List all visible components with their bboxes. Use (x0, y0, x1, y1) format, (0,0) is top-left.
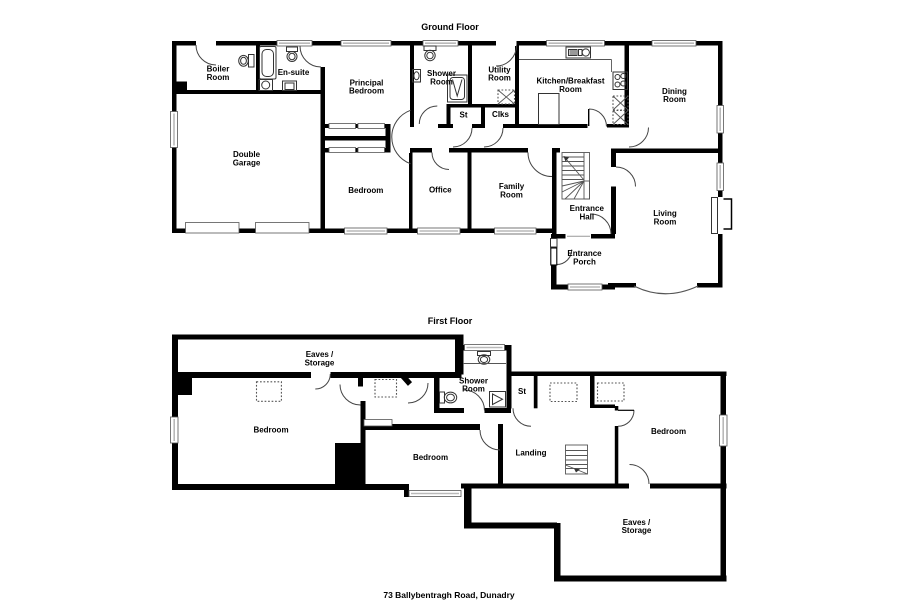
svg-text:Bedroom: Bedroom (253, 426, 288, 435)
svg-text:First Floor: First Floor (428, 316, 473, 326)
svg-text:Garage: Garage (233, 159, 261, 168)
svg-text:Bedroom: Bedroom (651, 427, 686, 436)
svg-text:En-suite: En-suite (278, 68, 310, 77)
svg-text:Storage: Storage (622, 526, 652, 535)
svg-text:Bedroom: Bedroom (349, 87, 384, 96)
svg-text:St: St (460, 111, 468, 120)
svg-text:Hall: Hall (579, 212, 594, 221)
svg-text:Room: Room (500, 191, 523, 200)
svg-text:Porch: Porch (573, 257, 596, 266)
svg-text:Room: Room (488, 74, 511, 83)
svg-text:Clks: Clks (492, 110, 509, 119)
svg-text:Landing: Landing (515, 449, 546, 458)
svg-text:Room: Room (663, 95, 686, 104)
svg-text:Room: Room (654, 217, 677, 226)
svg-text:Room: Room (430, 78, 453, 87)
svg-text:Bedroom: Bedroom (348, 186, 383, 195)
svg-text:Room: Room (462, 385, 485, 394)
svg-text:Bedroom: Bedroom (413, 453, 448, 462)
svg-text:St: St (518, 387, 526, 396)
svg-text:Ground Floor: Ground Floor (421, 22, 479, 32)
svg-text:Storage: Storage (305, 359, 335, 368)
svg-text:73 Ballybentragh Road, Dunadry: 73 Ballybentragh Road, Dunadry (383, 590, 515, 600)
svg-text:Office: Office (429, 186, 452, 195)
svg-text:Room: Room (207, 73, 230, 82)
svg-text:Room: Room (559, 85, 582, 94)
